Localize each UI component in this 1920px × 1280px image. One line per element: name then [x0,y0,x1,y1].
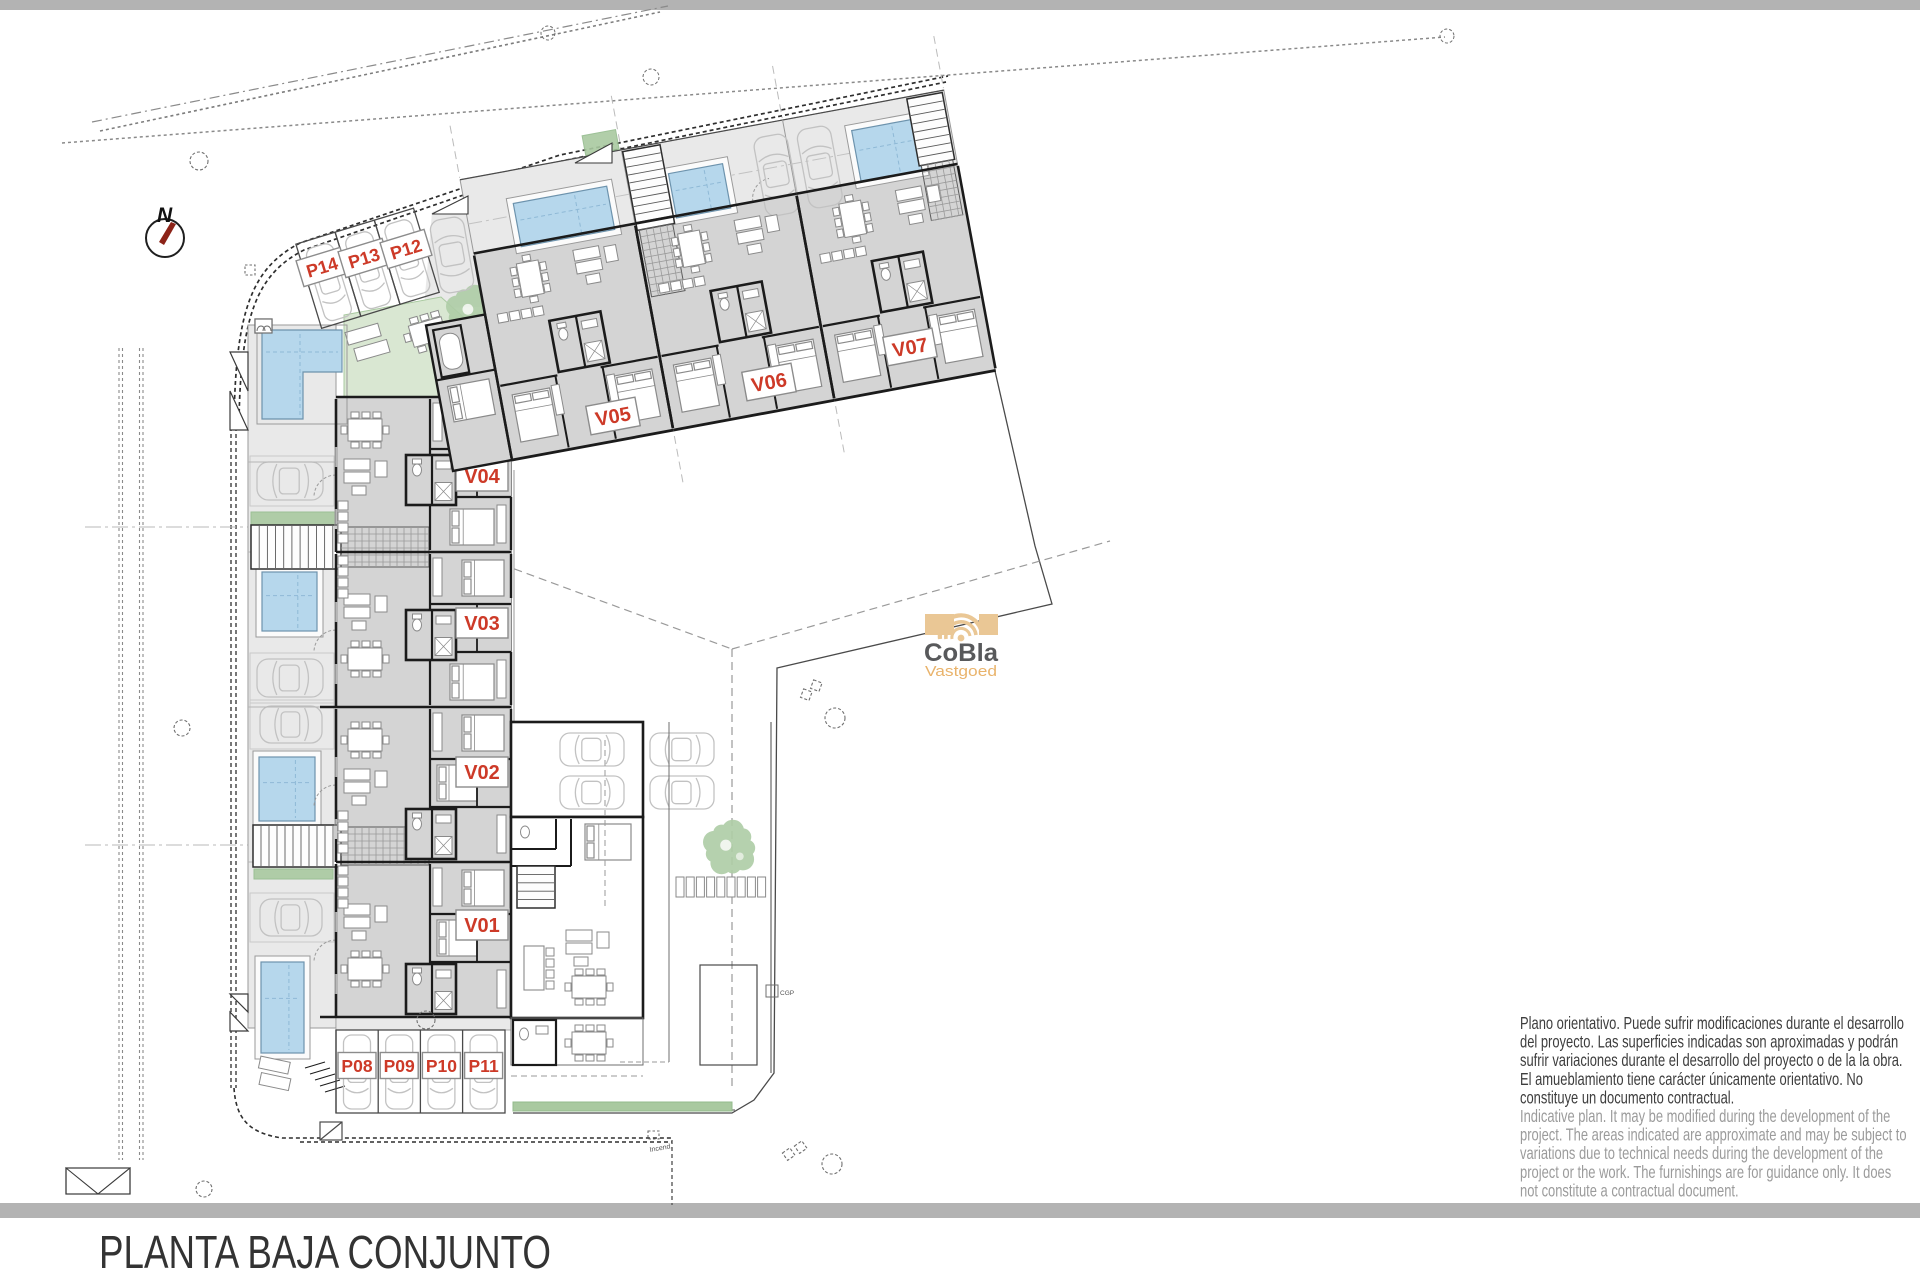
svg-text:sufrir variaciones durante el: sufrir variaciones durante el desarrollo… [1520,1051,1902,1070]
svg-text:V03: V03 [464,613,500,635]
svg-text:V04: V04 [464,466,500,488]
svg-text:El amueblamiento tiene carácte: El amueblamiento tiene carácter únicamen… [1520,1070,1863,1089]
svg-text:variations due to technical ne: variations due to technical needs during… [1520,1144,1883,1163]
svg-text:P09: P09 [384,1056,415,1076]
svg-text:CGP: CGP [780,990,794,997]
svg-text:V02: V02 [464,762,500,784]
svg-text:Vastgoed: Vastgoed [925,663,997,680]
svg-text:constituye un documento contra: constituye un documento contractual. [1520,1089,1734,1108]
svg-text:project or the work. The furni: project or the work. The furnishings are… [1520,1163,1891,1182]
svg-text:P11: P11 [469,1056,499,1076]
svg-text:V01: V01 [464,915,500,937]
svg-text:del proyecto. Las superficies: del proyecto. Las superficies indicadas … [1520,1033,1898,1052]
svg-text:P10: P10 [426,1056,457,1076]
svg-text:P08: P08 [341,1056,372,1076]
svg-text:not constitute a contractual d: not constitute a contractual document. [1520,1182,1739,1201]
svg-text:Plano orientativo. Puede sufri: Plano orientativo. Puede sufrir modifica… [1520,1014,1904,1033]
svg-text:project. The areas indicated a: project. The areas indicated are approxi… [1520,1126,1907,1145]
svg-text:Indicative plan. It may be mod: Indicative plan. It may be modified duri… [1520,1107,1890,1126]
svg-text:PLANTA BAJA CONJUNTO: PLANTA BAJA CONJUNTO [99,1226,551,1278]
